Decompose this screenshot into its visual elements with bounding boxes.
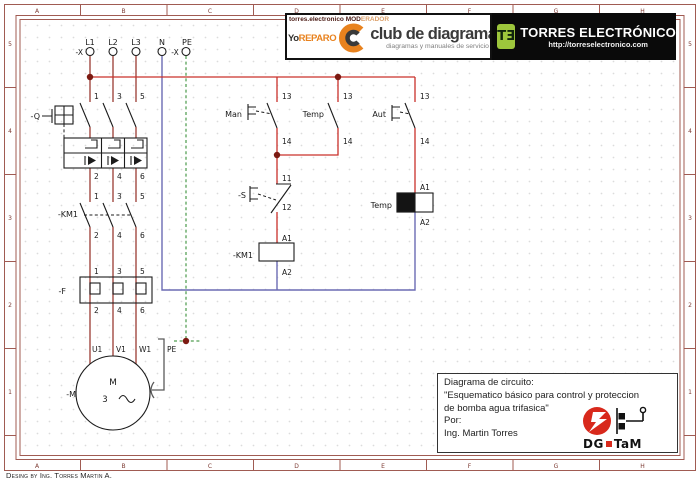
circuit-label: A2 <box>420 218 430 227</box>
moderator-line: torres.electronico MODERADOR <box>287 15 490 23</box>
moderator-line-light: ERADOR <box>361 16 389 23</box>
ruler-col-label: E <box>381 463 385 470</box>
circuit-label: PE <box>167 345 177 354</box>
circuit-label: 3 <box>102 395 107 405</box>
ruler-row-label: 3 <box>688 215 692 222</box>
circuit-label: A1 <box>282 234 292 243</box>
circuit-label: A1 <box>420 183 430 192</box>
circuit-label: 13 <box>343 92 353 101</box>
ruler-col-label: A <box>35 463 40 470</box>
circuit-label: 3 <box>117 192 122 201</box>
ruler-col-label: B <box>121 8 125 15</box>
dgitam-red-square <box>606 441 612 447</box>
km1-coil <box>259 243 294 261</box>
dgitam-logo-icon <box>581 405 675 439</box>
motor-m <box>76 356 150 430</box>
circuit-label: 2 <box>94 306 99 315</box>
title-block: Diagrama de circuito: "Esquematico básic… <box>437 373 678 453</box>
ruler-row-label: 4 <box>688 128 692 135</box>
footer-credit: Desing by Ing. Torres Martin A. <box>6 471 112 480</box>
ruler-row-label: 5 <box>8 41 12 48</box>
title-block-line: Diagrama de circuito: <box>444 377 677 390</box>
ruler-col-label: C <box>208 463 212 470</box>
circuit-label: PE <box>182 38 192 47</box>
circuit-label: 14 <box>343 137 353 146</box>
ruler-row-label: 2 <box>688 302 692 309</box>
ruler-col-label: G <box>554 463 559 470</box>
club-subtitle: diagramas y manuales de servicio <box>386 43 489 51</box>
ruler-col-label: B <box>121 463 125 470</box>
circuit-label: Temp <box>370 201 392 210</box>
ruler-col-label: A <box>35 8 40 15</box>
dgitam-wordmark: DGTaM <box>583 437 642 451</box>
circuit-label: 4 <box>117 306 122 315</box>
circuit-label: 5 <box>140 192 145 201</box>
circuit-label: 3 <box>117 267 122 276</box>
ruler-row-label: 2 <box>8 302 12 309</box>
circuit-label: -M <box>66 390 76 399</box>
torres-url: http://torreselectronico.com <box>548 40 648 49</box>
circuit-label: 5 <box>140 267 145 276</box>
temp-relay-coil <box>397 193 433 212</box>
circuit-label: -X <box>76 48 83 57</box>
club-de-diagramas-banner: torres.electronico MODERADOR YoREPARO cl… <box>285 13 492 60</box>
circuit-label: 4 <box>117 231 122 240</box>
circuit-label: Man <box>225 110 242 119</box>
circuit-label: 6 <box>140 306 145 315</box>
circuit-label: -F <box>59 287 67 296</box>
ruler-row-label: 1 <box>688 389 692 396</box>
club-title: club de diagramas <box>370 25 492 43</box>
circuit-label: U1 <box>92 345 102 354</box>
circuit-label: L3 <box>131 38 141 47</box>
circuit-label: 1 <box>94 192 99 201</box>
club-logo-icon <box>338 23 368 53</box>
ruler-row-label: 3 <box>8 215 12 222</box>
circuit-label: 13 <box>420 92 430 101</box>
torres-electronico-banner: TƎ TORRES ELECTRÓNICO http://torreselect… <box>492 13 676 60</box>
circuit-label: 2 <box>94 172 99 181</box>
circuit-label: 14 <box>420 137 430 146</box>
circuit-label: -S <box>238 191 246 200</box>
circuit-label: N <box>159 38 165 47</box>
circuit-label: 12 <box>282 203 292 212</box>
ruler-col-label: F <box>468 463 472 470</box>
circuit-label: 4 <box>117 172 122 181</box>
circuit-label: 6 <box>140 172 145 181</box>
moderator-line-dark: torres.electronico MOD <box>289 16 361 23</box>
circuit-label: A2 <box>282 268 292 277</box>
yoreparo-wordmark: YoREPARO <box>288 33 336 44</box>
title-block-line: "Esquematico básico para control y prote… <box>444 390 677 403</box>
ruler-row-label: 5 <box>688 41 692 48</box>
circuit-label: V1 <box>116 345 126 354</box>
circuit-label: 13 <box>282 92 292 101</box>
ruler-col-label: H <box>640 463 645 470</box>
circuit-label: -X <box>171 48 178 57</box>
circuit-label: 5 <box>140 92 145 101</box>
circuit-label: -Q <box>31 112 40 121</box>
ruler-row-label: 1 <box>8 389 12 396</box>
circuit-label: W1 <box>139 345 151 354</box>
circuit-label: L2 <box>108 38 118 47</box>
torres-title: TORRES ELECTRÓNICO <box>520 25 676 40</box>
circuit-label: 14 <box>282 137 292 146</box>
ruler-col-label: D <box>294 463 299 470</box>
circuit-label: Aut <box>372 110 386 119</box>
circuit-label: 11 <box>282 174 292 183</box>
ruler-row-label: 4 <box>8 128 12 135</box>
circuit-label: -KM1 <box>58 210 78 219</box>
circuit-label: M <box>109 378 117 388</box>
drawing-sheet: AABBCCDDEEFFGGHH5544332211 <box>0 0 700 481</box>
circuit-label: 1 <box>94 92 99 101</box>
circuit-label: 2 <box>94 231 99 240</box>
dgitam-logo: DGTaM <box>581 405 675 451</box>
circuit-label: 3 <box>117 92 122 101</box>
circuit-label: L1 <box>85 38 95 47</box>
circuit-label: 6 <box>140 231 145 240</box>
circuit-label: Temp <box>302 110 324 119</box>
circuit-label: 1 <box>94 267 99 276</box>
t3-logo: TƎ <box>497 24 515 49</box>
circuit-label: -KM1 <box>233 251 253 260</box>
ruler-col-label: C <box>208 8 212 15</box>
